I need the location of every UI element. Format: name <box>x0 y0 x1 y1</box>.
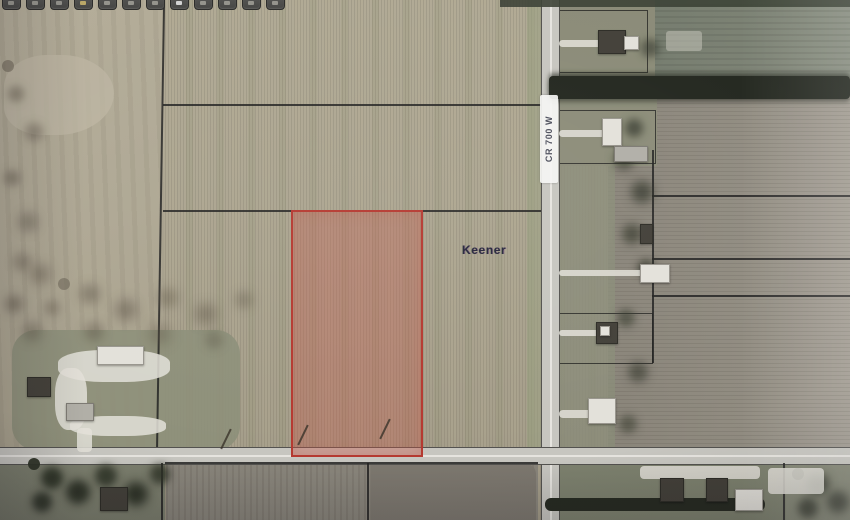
pasture-patch <box>666 31 702 51</box>
parcel-line-horizontal-1 <box>163 104 543 106</box>
toolbar-icon[interactable] <box>74 0 93 10</box>
parcel-line-east-vertical <box>652 150 654 363</box>
toolbar-icon[interactable] <box>122 0 141 10</box>
barn-east <box>640 264 670 283</box>
house-west <box>27 377 51 397</box>
parcel-line-east-3 <box>652 295 850 297</box>
driveway-east <box>559 270 643 276</box>
shed-east-3 <box>640 224 653 244</box>
lawn-southwest <box>0 462 165 520</box>
toolbar-icon[interactable] <box>266 0 285 10</box>
hedge-row-southeast <box>545 498 765 511</box>
house-southwest <box>100 487 128 511</box>
evergreen-trees-southwest <box>28 458 40 470</box>
shed-west <box>66 403 94 421</box>
parcel-line-south-vertical <box>367 463 369 520</box>
driveway-south <box>640 466 760 479</box>
roof-detail <box>600 326 610 336</box>
parcel-line-south-road-edge <box>165 462 538 464</box>
toolbar-icon[interactable] <box>242 0 261 10</box>
toolbar <box>2 0 285 8</box>
parcel-line-east-1 <box>652 195 850 197</box>
parcel-map-view[interactable]: Keener CR 700 W <box>0 0 850 520</box>
parcel-line-east-2 <box>652 258 850 260</box>
tree-line-top <box>500 0 850 7</box>
tree-line-east <box>549 76 850 99</box>
house-east-2 <box>602 118 622 146</box>
house-east-5 <box>588 398 616 424</box>
driveway-east <box>559 40 601 47</box>
bare-trees-farmstead <box>58 278 70 290</box>
selected-parcel[interactable] <box>291 210 423 457</box>
driveway-south <box>768 468 824 494</box>
parcel-line-southwest-vertical <box>161 463 163 520</box>
toolbar-icon[interactable] <box>50 0 69 10</box>
garage-east-1 <box>624 36 639 50</box>
toolbar-icon[interactable] <box>170 0 189 10</box>
barn-west <box>97 346 144 365</box>
toolbar-icon[interactable] <box>218 0 237 10</box>
driveway-east <box>559 130 605 137</box>
road-name-label: CR 700 W <box>540 95 558 183</box>
toolbar-icon[interactable] <box>98 0 117 10</box>
toolbar-icon[interactable] <box>26 0 45 10</box>
shed-east-2 <box>614 146 648 162</box>
parcel-owner-label: Keener <box>462 243 506 257</box>
aerial-imagery: Keener CR 700 W <box>0 0 850 520</box>
house-south-1 <box>660 478 684 502</box>
toolbar-icon[interactable] <box>194 0 213 10</box>
house-south-3 <box>735 489 763 511</box>
road-name-text: CR 700 W <box>544 116 554 162</box>
toolbar-icon[interactable] <box>2 0 21 10</box>
bare-trees-west-edge <box>2 60 14 72</box>
driveway-east <box>559 330 599 336</box>
house-east-1 <box>598 30 626 54</box>
field-south-dark <box>371 464 536 520</box>
toolbar-icon[interactable] <box>146 0 165 10</box>
driveway-to-road <box>77 428 92 452</box>
house-south-2 <box>706 478 728 502</box>
